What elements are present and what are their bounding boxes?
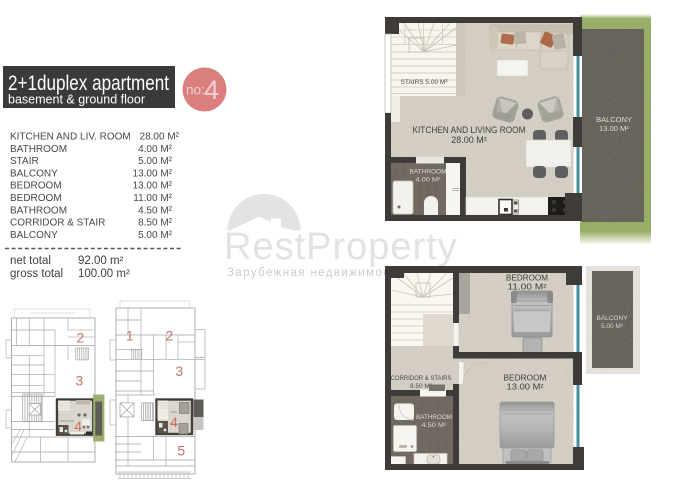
- svg-text:BATHROOM: BATHROOM: [10, 205, 67, 216]
- svg-text:4.50 M²: 4.50 M²: [422, 422, 448, 429]
- svg-text:CORRIDOR & STAIR: CORRIDOR & STAIR: [10, 218, 105, 229]
- svg-text:RestProperty: RestProperty: [224, 226, 458, 268]
- svg-text:3: 3: [75, 373, 83, 389]
- svg-text:13.00 M²: 13.00 M²: [599, 124, 629, 133]
- svg-text:BALCONY: BALCONY: [10, 230, 58, 241]
- svg-text:100.00 m²: 100.00 m²: [78, 268, 130, 280]
- svg-text:4: 4: [74, 418, 82, 434]
- svg-text:4.00 M²: 4.00 M²: [138, 144, 173, 155]
- svg-text:gross total: gross total: [10, 268, 63, 280]
- svg-text:basement & ground floor: basement & ground floor: [8, 92, 146, 107]
- svg-text:CORRIDOR & STAIRS: CORRIDOR & STAIRS: [391, 375, 453, 382]
- svg-text:4: 4: [170, 414, 178, 430]
- svg-text:28.00 M²: 28.00 M²: [140, 132, 180, 143]
- svg-text:BATHROOM: BATHROOM: [410, 169, 447, 176]
- svg-text:3: 3: [175, 363, 183, 379]
- svg-text:11.00 M²: 11.00 M²: [133, 193, 172, 204]
- svg-text:KITCHEN AND LIV. ROOM: KITCHEN AND LIV. ROOM: [10, 132, 131, 143]
- svg-text:BEDROOM: BEDROOM: [504, 373, 547, 382]
- svg-text:5: 5: [177, 442, 185, 458]
- svg-text:5.00 M²: 5.00 M²: [601, 323, 624, 330]
- svg-text:STAIR: STAIR: [10, 156, 39, 167]
- svg-text:11.00 M²: 11.00 M²: [508, 283, 547, 292]
- svg-text:STAIRS 5.00 M²: STAIRS 5.00 M²: [401, 79, 449, 86]
- svg-text:BALCONY: BALCONY: [596, 115, 632, 124]
- svg-text:BATHROOM: BATHROOM: [416, 414, 452, 421]
- svg-text:1: 1: [126, 328, 134, 344]
- svg-text:BALCONY: BALCONY: [10, 168, 58, 179]
- svg-text:13.00 M²: 13.00 M²: [507, 382, 544, 391]
- svg-text:28.00 M²: 28.00 M²: [451, 135, 487, 145]
- svg-text:KITCHEN AND LIVING ROOM: KITCHEN AND LIVING ROOM: [413, 125, 526, 135]
- svg-text:92.00 m²: 92.00 m²: [78, 255, 124, 267]
- svg-text:13.00 M²: 13.00 M²: [133, 168, 173, 179]
- svg-text:5.00 M²: 5.00 M²: [138, 156, 173, 167]
- svg-text:BALCONY: BALCONY: [596, 315, 628, 322]
- svg-text:4.50 M²: 4.50 M²: [138, 205, 173, 216]
- svg-text:5.00 M²: 5.00 M²: [138, 230, 173, 241]
- svg-text:BATHROOM: BATHROOM: [10, 144, 67, 155]
- svg-text:BEDROOM: BEDROOM: [10, 193, 62, 204]
- svg-text:4.00 M²: 4.00 M²: [416, 177, 442, 184]
- svg-text:4: 4: [204, 75, 219, 105]
- svg-text:2: 2: [166, 328, 174, 344]
- svg-text:Зарубежная недвижимость: Зарубежная недвижимость: [227, 267, 404, 279]
- svg-text:no:: no:: [186, 83, 205, 98]
- svg-text:13.00 M²: 13.00 M²: [133, 181, 173, 192]
- svg-text:2: 2: [77, 330, 85, 346]
- svg-text:BEDROOM: BEDROOM: [10, 181, 62, 192]
- svg-text:8.50 M²: 8.50 M²: [138, 218, 173, 229]
- svg-text:net total: net total: [10, 255, 51, 267]
- svg-text:BEDROOM: BEDROOM: [506, 273, 548, 282]
